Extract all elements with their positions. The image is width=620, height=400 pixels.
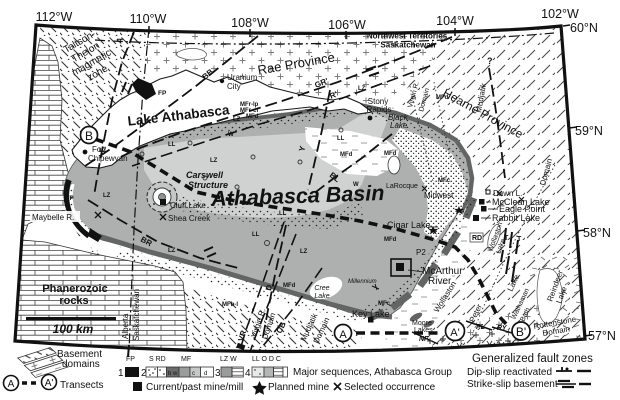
- svg-text:MFd: MFd: [340, 152, 353, 158]
- svg-text:Phanerozoic: Phanerozoic: [42, 283, 107, 295]
- svg-text:LZ: LZ: [210, 158, 218, 164]
- svg-text:Uranium: Uranium: [227, 73, 258, 82]
- svg-text:57°N: 57°N: [588, 329, 616, 343]
- svg-text:Dip-slip reactivated: Dip-slip reactivated: [467, 367, 552, 378]
- svg-text:Transects: Transects: [60, 380, 104, 391]
- svg-text:c: c: [192, 371, 195, 377]
- svg-text:LL: LL: [252, 232, 260, 238]
- svg-text:T: T: [517, 236, 522, 243]
- svg-text:Current/past mine/mill: Current/past mine/mill: [146, 382, 243, 393]
- svg-text:MFd: MFd: [384, 237, 397, 243]
- svg-text:Moore: Moore: [412, 320, 432, 327]
- svg-text:NF: NF: [419, 336, 429, 343]
- svg-text:LZ W: LZ W: [220, 356, 237, 363]
- svg-text:106°W: 106°W: [328, 18, 366, 32]
- svg-text:MFc: MFc: [378, 301, 391, 307]
- svg-text:FP: FP: [66, 196, 74, 202]
- svg-text:MFb-l: MFb-l: [222, 302, 238, 308]
- svg-text:59°N: 59°N: [575, 124, 603, 138]
- svg-text:MF: MF: [181, 356, 191, 363]
- svg-text:B': B': [516, 325, 526, 339]
- svg-text:Lake: Lake: [314, 293, 329, 300]
- svg-text:PL: PL: [476, 324, 485, 331]
- svg-text:58°N: 58°N: [583, 226, 611, 240]
- svg-text:Shea Creek: Shea Creek: [168, 214, 211, 223]
- svg-text:Strike-slip basement: Strike-slip basement: [467, 379, 558, 390]
- svg-text:LZ: LZ: [358, 86, 366, 92]
- svg-text:FP: FP: [126, 356, 135, 363]
- svg-text:102°W: 102°W: [541, 7, 579, 21]
- svg-text:Saskatchewan: Saskatchewan: [380, 41, 435, 50]
- svg-text:Planned mine: Planned mine: [268, 382, 330, 393]
- svg-text:LL O D C: LL O D C: [252, 356, 281, 363]
- svg-text:LL: LL: [279, 211, 287, 217]
- svg-text:Saskatchewan: Saskatchewan: [132, 289, 141, 341]
- svg-text:S RD: S RD: [149, 356, 166, 363]
- svg-text:A': A': [450, 327, 459, 339]
- svg-text:FP: FP: [158, 90, 167, 97]
- svg-text:domains: domains: [62, 359, 100, 370]
- svg-text:A: A: [339, 329, 347, 341]
- svg-text:Alberta: Alberta: [121, 313, 130, 339]
- svg-text:LZ: LZ: [99, 148, 107, 154]
- svg-text:MFd: MFd: [436, 95, 449, 101]
- svg-text:Millennium: Millennium: [348, 279, 377, 285]
- svg-text:A': A': [45, 378, 54, 389]
- svg-text:Rabbit Lake: Rabbit Lake: [492, 213, 540, 223]
- svg-text:LZ: LZ: [103, 193, 111, 199]
- svg-text:Chipewyan: Chipewyan: [88, 154, 128, 163]
- svg-text:110°W: 110°W: [130, 12, 167, 26]
- svg-text:MFd: MFd: [246, 114, 259, 120]
- svg-text:Cluff Lake: Cluff Lake: [170, 201, 206, 210]
- svg-text:LL: LL: [168, 142, 176, 148]
- svg-text:LL: LL: [337, 136, 345, 142]
- svg-text:LZ: LZ: [233, 117, 241, 123]
- svg-text:Lakes: Lakes: [414, 327, 433, 334]
- svg-text:B: B: [85, 129, 93, 143]
- svg-text:112°W: 112°W: [36, 10, 73, 24]
- svg-text:RD: RD: [472, 235, 482, 242]
- svg-text:LZ: LZ: [168, 248, 176, 254]
- svg-text:City: City: [227, 82, 241, 91]
- svg-text:MFd: MFd: [384, 151, 397, 157]
- svg-text:LaRocque: LaRocque: [386, 183, 418, 190]
- svg-text:A: A: [8, 379, 15, 390]
- svg-text:MFd: MFd: [283, 283, 296, 289]
- svg-text:Carswell: Carswell: [186, 170, 224, 180]
- svg-text:100 km: 100 km: [53, 322, 94, 336]
- svg-text:Major sequences, Athabasca Gro: Major sequences, Athabasca Group: [293, 367, 452, 378]
- svg-text:4: 4: [245, 368, 251, 379]
- svg-text:104°W: 104°W: [436, 14, 474, 28]
- svg-text:Cigar Lake: Cigar Lake: [387, 220, 431, 230]
- svg-text:MFc: MFc: [438, 178, 451, 184]
- svg-text:LZ: LZ: [300, 249, 308, 255]
- svg-text:Midwest: Midwest: [424, 191, 454, 200]
- svg-text:?: ?: [487, 56, 493, 66]
- svg-text:RY: RY: [497, 325, 508, 332]
- svg-text:rocks: rocks: [59, 295, 88, 307]
- svg-text:Maybelle R.: Maybelle R.: [32, 213, 74, 222]
- svg-text:P2: P2: [416, 248, 426, 257]
- svg-text:3: 3: [215, 368, 221, 379]
- svg-text:w: w: [172, 371, 178, 377]
- svg-text:d: d: [204, 371, 207, 377]
- svg-text:Selected occurrence: Selected occurrence: [344, 382, 436, 393]
- svg-text:Lake: Lake: [390, 121, 408, 130]
- svg-text:108°W: 108°W: [231, 16, 269, 30]
- svg-text:60°N: 60°N: [570, 21, 598, 35]
- svg-text:1: 1: [118, 368, 124, 379]
- svg-text:Generalized fault zones: Generalized fault zones: [472, 353, 593, 365]
- svg-text:W: W: [228, 132, 234, 138]
- svg-text:Cree: Cree: [314, 285, 329, 292]
